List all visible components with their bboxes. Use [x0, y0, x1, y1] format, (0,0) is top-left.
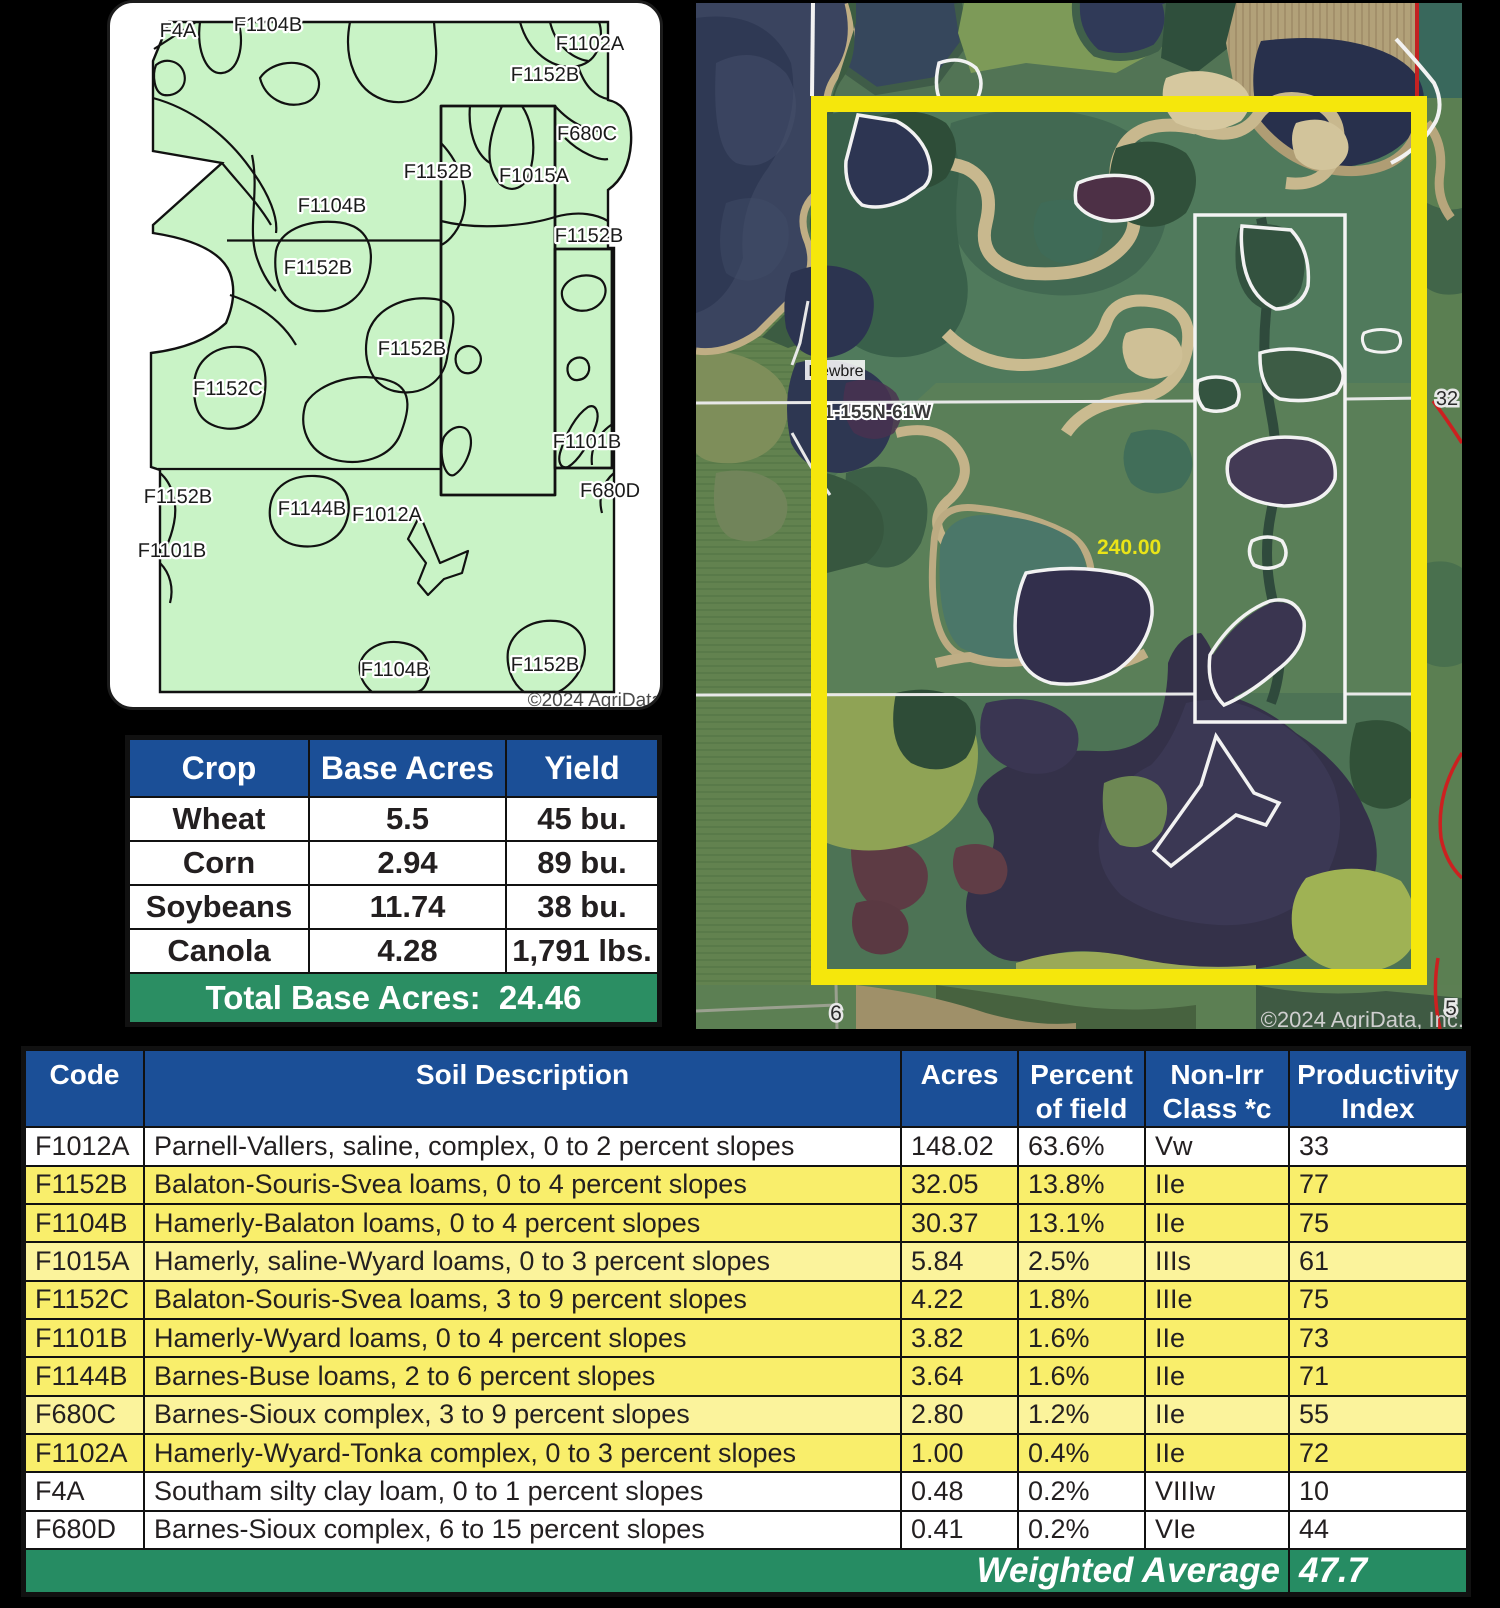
svg-text:F1104B: F1104B: [234, 14, 303, 36]
svg-text:F1012A: F1012A: [352, 504, 423, 526]
svg-text:F1015A: F1015A: [499, 165, 570, 187]
svg-text:F680D: F680D: [580, 480, 640, 502]
svg-text:F4A: F4A: [160, 20, 197, 42]
svg-text:F1104B: F1104B: [298, 195, 367, 217]
svg-text:32: 32: [1436, 388, 1458, 410]
svg-text:F1104B: F1104B: [361, 659, 430, 681]
svg-text:F680C: F680C: [557, 123, 617, 145]
svg-text:F1102A: F1102A: [556, 33, 625, 55]
svg-text:F1152C: F1152C: [193, 378, 263, 400]
svg-text:F1101B: F1101B: [138, 540, 207, 562]
svg-text:F1144B: F1144B: [278, 498, 347, 520]
svg-text:F1152B: F1152B: [378, 338, 447, 360]
svg-text:F1152B: F1152B: [511, 64, 580, 86]
svg-text:©2024 AgriData: ©2024 AgriData: [528, 690, 660, 707]
svg-text:240.00: 240.00: [1097, 536, 1161, 559]
svg-text:F1152B: F1152B: [555, 225, 624, 247]
svg-text:F1152B: F1152B: [404, 161, 473, 183]
svg-text:F1152B: F1152B: [284, 257, 353, 279]
svg-text:©2024 AgriData, Inc.: ©2024 AgriData, Inc.: [1261, 1007, 1462, 1029]
svg-text:31-155N-61W: 31-155N-61W: [813, 402, 931, 423]
svg-text:F1152B: F1152B: [144, 486, 213, 508]
svg-text:F1101B: F1101B: [553, 431, 622, 453]
svg-text:6: 6: [830, 1002, 842, 1025]
svg-text:F1152B: F1152B: [511, 654, 580, 676]
